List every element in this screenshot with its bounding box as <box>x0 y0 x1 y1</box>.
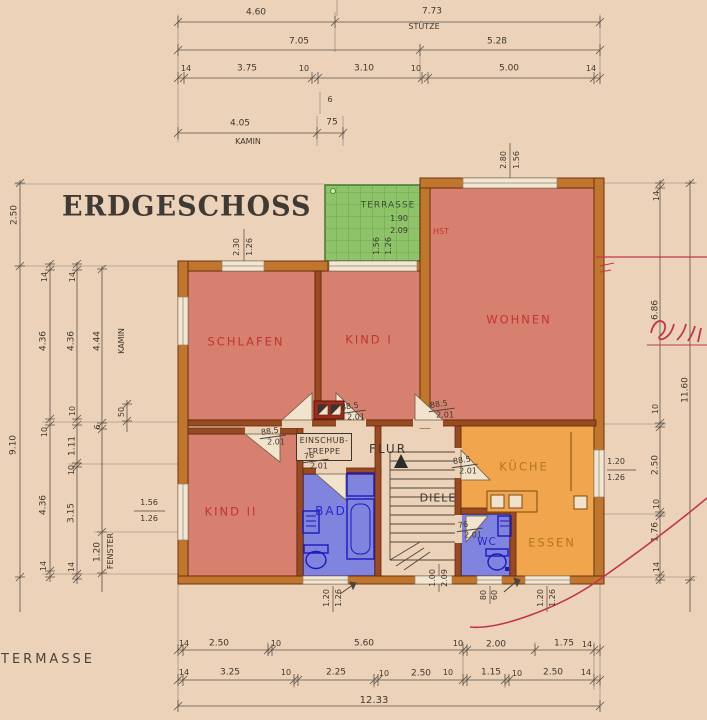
room-label-diele: DIELE <box>420 493 457 504</box>
dim-label-14: 14 <box>581 669 591 677</box>
dim-label-2.50: 2.50 <box>543 669 563 678</box>
dim-label-10: 10 <box>379 670 389 678</box>
dim-label-6.86: 6.86 <box>652 300 661 320</box>
dim-label-1.26: 1.26 <box>335 589 343 607</box>
dim-label-1.20: 1.20 <box>94 542 103 562</box>
dim-label-6: 6 <box>327 96 332 104</box>
dim-label-10: 10 <box>411 65 421 73</box>
dim-label-10: 10 <box>68 465 76 475</box>
dim-label-10: 10 <box>281 669 291 677</box>
dim-label-14: 14 <box>653 191 661 201</box>
dim-label-2.50: 2.50 <box>411 670 431 679</box>
dim-label-10: 10 <box>443 669 453 677</box>
dim-label-5.60: 5.60 <box>354 640 374 649</box>
dim-label-7.05: 7.05 <box>289 38 309 47</box>
dim-label-5.00: 5.00 <box>499 65 519 74</box>
room-label-wohnen: WOHNEN <box>486 314 552 326</box>
dim-label-11.60: 11.60 <box>682 377 691 403</box>
dim-label-14: 14 <box>69 272 77 282</box>
dim-label-10: 10 <box>512 670 522 678</box>
dim-label-1.20: 1.20 <box>323 589 331 607</box>
dim-label-4.05: 4.05 <box>230 120 250 129</box>
dimension-labels-layer: 4.607.73STÜTZE7.055.28143.75103.10105.00… <box>0 0 707 720</box>
door-size-label-2: 88.52.01 <box>428 401 454 420</box>
room-label-flur: FLUR <box>369 443 407 455</box>
dim-label-10: 10 <box>653 499 661 509</box>
dim-label-14: 14 <box>653 562 661 572</box>
dim-label-1.90: 1.90 <box>390 215 408 223</box>
dim-label-2.50: 2.50 <box>209 640 229 649</box>
dim-label-2.50: 2.50 <box>11 205 20 225</box>
floorplan-page: ERDGESCHOSS TERMASSE EINSCHUB- TREPPE 4.… <box>0 0 707 720</box>
dim-label-3.25: 3.25 <box>220 669 240 678</box>
dim-label-1.26: 1.26 <box>549 589 557 607</box>
dim-label-50: 50 <box>118 407 126 417</box>
dim-label-10: 10 <box>271 640 281 648</box>
dim-label-6: 6 <box>94 424 102 429</box>
dim-label-2.80: 2.80 <box>500 151 508 169</box>
dim-label-5.28: 5.28 <box>487 38 507 47</box>
dim-label-2.09: 2.09 <box>390 227 408 235</box>
door-size-label-5: 762.01 <box>456 521 482 540</box>
door-size-label-1: 88.52.01 <box>339 403 365 422</box>
dim-label-1.20: 1.20 <box>607 458 625 466</box>
door-size-label-4: 762.01 <box>302 452 328 471</box>
door-size-label-0: 88.52.01 <box>259 428 285 447</box>
dim-label-7.73: 7.73 <box>422 8 442 17</box>
dim-label-1.76: 1.76 <box>652 522 661 542</box>
room-label-essen: ESSEN <box>528 537 576 549</box>
dim-label-2.50: 2.50 <box>652 455 661 475</box>
dim-label-kamin: KAMIN <box>118 328 126 354</box>
dim-label-4.36: 4.36 <box>68 331 77 351</box>
dim-label-4.36: 4.36 <box>40 495 49 515</box>
dim-label-12.33: 12.33 <box>360 696 389 706</box>
dim-label-4.36: 4.36 <box>40 331 49 351</box>
dim-label-1.26: 1.26 <box>385 237 393 255</box>
dim-label-3.75: 3.75 <box>237 65 257 74</box>
dim-label-1.26: 1.26 <box>140 515 158 523</box>
dim-label-3.10: 3.10 <box>354 65 374 74</box>
dim-label-60: 60 <box>491 590 499 600</box>
dim-label-10: 10 <box>299 65 309 73</box>
dim-label-75: 75 <box>326 119 337 128</box>
room-label-kind2: KIND II <box>205 506 258 518</box>
dim-label-kamin: KAMIN <box>235 138 261 146</box>
dim-label-14: 14 <box>40 561 48 571</box>
dim-label-14: 14 <box>41 272 49 282</box>
room-label-terrasse: TERRASSE <box>361 202 416 211</box>
dim-label-3.15: 3.15 <box>68 503 77 523</box>
dim-label-14: 14 <box>582 641 592 649</box>
dim-label-1.26: 1.26 <box>607 474 625 482</box>
dim-label-14: 14 <box>68 562 76 572</box>
room-label-kind1: KIND I <box>345 334 392 346</box>
door-size-label-3: 88.52.01 <box>451 457 477 476</box>
dim-label-fenster: FENSTER <box>107 533 115 569</box>
dim-label-4.60: 4.60 <box>246 9 266 18</box>
dim-label-14: 14 <box>586 65 596 73</box>
dim-label-80: 80 <box>480 590 488 600</box>
dim-label-10: 10 <box>453 640 463 648</box>
dim-label-10: 10 <box>652 404 660 414</box>
room-label-kueche: KÜCHE <box>499 461 549 473</box>
dim-label-14: 14 <box>181 65 191 73</box>
dim-label-1.20: 1.20 <box>537 589 545 607</box>
dim-label-1.15: 1.15 <box>481 669 501 678</box>
room-label-schlafen: SCHLAFEN <box>208 336 285 348</box>
dim-label-14: 14 <box>179 640 189 648</box>
dim-label-10: 10 <box>69 406 77 416</box>
dim-label-10: 10 <box>41 427 49 437</box>
dim-label-1.00: 1.00 <box>429 569 437 587</box>
dim-label-hst: HST <box>433 228 449 236</box>
dim-label-2.25: 2.25 <box>326 669 346 678</box>
dim-label-stütze: STÜTZE <box>408 23 439 31</box>
dim-label-1.11: 1.11 <box>69 436 78 456</box>
dim-label-1.56: 1.56 <box>513 151 521 169</box>
dim-label-9.10: 9.10 <box>10 435 19 455</box>
dim-label-2.30: 2.30 <box>233 238 241 256</box>
dim-label-1.56: 1.56 <box>140 499 158 507</box>
dim-label-1.75: 1.75 <box>554 640 574 649</box>
dim-label-4.44: 4.44 <box>94 331 103 351</box>
dim-label-1.26: 1.26 <box>246 238 254 256</box>
dim-label-2.09: 2.09 <box>441 569 449 587</box>
dim-label-1.56: 1.56 <box>373 237 381 255</box>
room-label-bad: BAD <box>315 505 347 517</box>
dim-label-2.00: 2.00 <box>486 641 506 650</box>
dim-label-14: 14 <box>179 669 189 677</box>
